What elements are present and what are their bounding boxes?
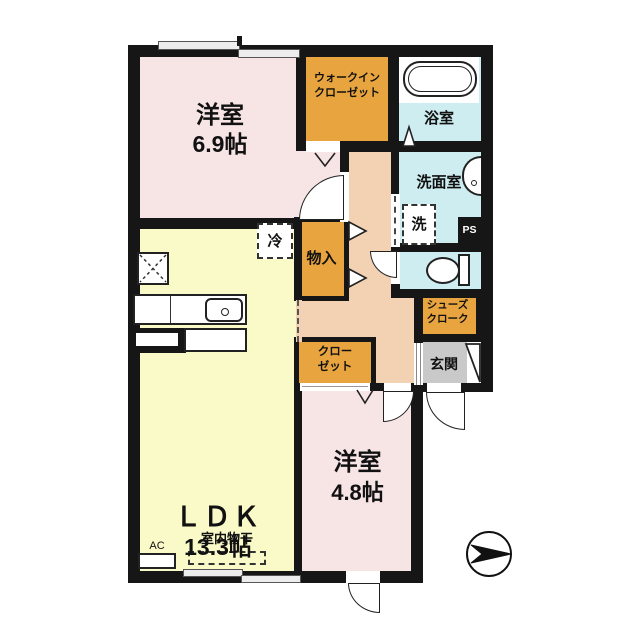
floorplan: 洋室 6.9帖 ウォークイン クローゼット 浴室 洗面室 洗 PS 物入 冷 シ… <box>0 0 640 640</box>
toilet-tank <box>458 254 470 286</box>
kitchen-counter-divider <box>170 296 171 323</box>
toilet-bowl <box>426 257 460 284</box>
bedroom-main-size: 6.9帖 <box>160 131 280 157</box>
closet-sliding-opening <box>300 383 370 391</box>
wall-entrance-bottom-right <box>461 383 493 392</box>
top-window-pane-right <box>238 49 300 58</box>
compass <box>466 531 512 577</box>
ldk-hall-dashed <box>297 300 299 342</box>
wic-doorway <box>306 141 340 152</box>
wall-stub-bedroom-door <box>340 150 349 174</box>
ac-label: AC <box>138 540 176 553</box>
bedroom-small-size: 4.8帖 <box>302 480 413 505</box>
wall-right-upper <box>481 45 493 392</box>
top-window-pane-left <box>158 41 240 50</box>
wall-washroom-left <box>391 152 399 196</box>
bottom-window-pane-left <box>183 569 243 577</box>
bathtub <box>403 61 477 97</box>
kitchen-counter-front <box>184 328 247 352</box>
ldk-label: ＬＤＫ <box>140 502 296 533</box>
fridge-label: 冷 <box>257 233 293 250</box>
closet-label-1: クロー <box>294 346 376 359</box>
shoe-closet-label-1: シューズ <box>414 299 481 311</box>
washroom-sliding-door <box>394 196 396 245</box>
kitchen-base-inset <box>136 333 178 346</box>
wall-shoe-entrance <box>414 334 481 342</box>
wall-toilet-bottom <box>391 289 481 298</box>
kitchen-sink-drain <box>221 308 229 316</box>
entrance-door-swing <box>426 392 465 430</box>
wall-wic-bath <box>388 45 399 152</box>
top-window-mullion <box>237 36 242 46</box>
shoe-closet-label-2: クローク <box>414 313 481 325</box>
wall-closet-right-stub <box>370 383 384 391</box>
closet-label-2: ゼット <box>294 361 376 374</box>
entrance-label: 玄関 <box>421 356 467 372</box>
entrance-step-line <box>416 343 417 385</box>
hatch-box <box>137 252 169 285</box>
bottom-door-swing <box>348 583 380 613</box>
wic-label-1: ウォークイン <box>306 72 388 85</box>
washer-label: 洗 <box>402 216 436 233</box>
wic-label-2: クローゼット <box>306 87 388 100</box>
bedroom-main-label: 洋室 <box>160 102 280 130</box>
entrance-door-icon <box>466 344 480 382</box>
bottom-doorway <box>346 571 380 583</box>
washroom-label: 洗面室 <box>399 174 479 191</box>
indoor-drying-label: 室内物干 <box>184 532 270 547</box>
bathroom-label: 浴室 <box>399 110 479 127</box>
bathtub-inner <box>408 66 472 92</box>
bedroom-small-doorway <box>384 383 411 391</box>
pipe-space-label: PS <box>458 224 481 236</box>
walk-in-closet-floor <box>306 57 388 143</box>
wall-bedroom-right <box>296 51 306 151</box>
closet-sliding-line <box>302 386 368 387</box>
bedroom-small-label: 洋室 <box>302 449 413 477</box>
storage-label: 物入 <box>294 250 349 267</box>
bottom-window-pane-right <box>241 575 301 583</box>
entrance-doorway <box>427 383 461 392</box>
wall-bath-washroom <box>390 141 481 152</box>
